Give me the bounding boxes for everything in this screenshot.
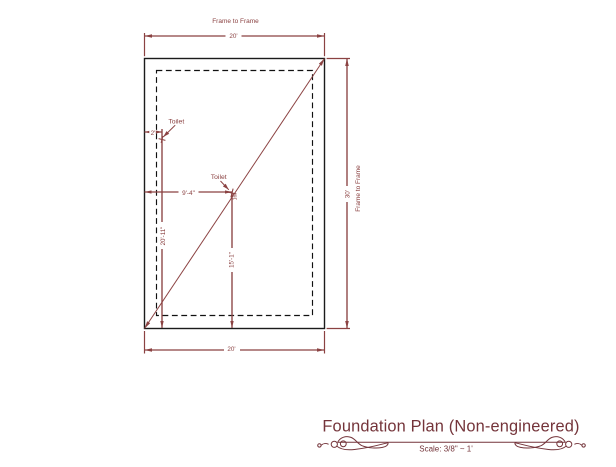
svg-text:2': 2' [151, 130, 156, 137]
svg-text:16": 16" [233, 193, 239, 201]
svg-text:30': 30' [344, 190, 351, 198]
svg-text:20'-11": 20'-11" [160, 227, 167, 246]
svg-text:Foundation Plan (Non-engineere: Foundation Plan (Non-engineered) [322, 418, 579, 436]
svg-text:Toilet: Toilet [168, 119, 184, 126]
svg-text:Toilet: Toilet [211, 174, 227, 181]
svg-text:9'-4": 9'-4" [182, 190, 195, 197]
svg-text:20': 20' [227, 346, 235, 353]
svg-text:Frame to Frame: Frame to Frame [212, 18, 259, 25]
svg-text:Frame to Frame: Frame to Frame [355, 165, 362, 212]
svg-text:15'-1": 15'-1" [229, 252, 236, 268]
svg-text:Scale: 3/8" ~ 1': Scale: 3/8" ~ 1' [419, 444, 473, 453]
svg-text:20': 20' [229, 33, 237, 40]
